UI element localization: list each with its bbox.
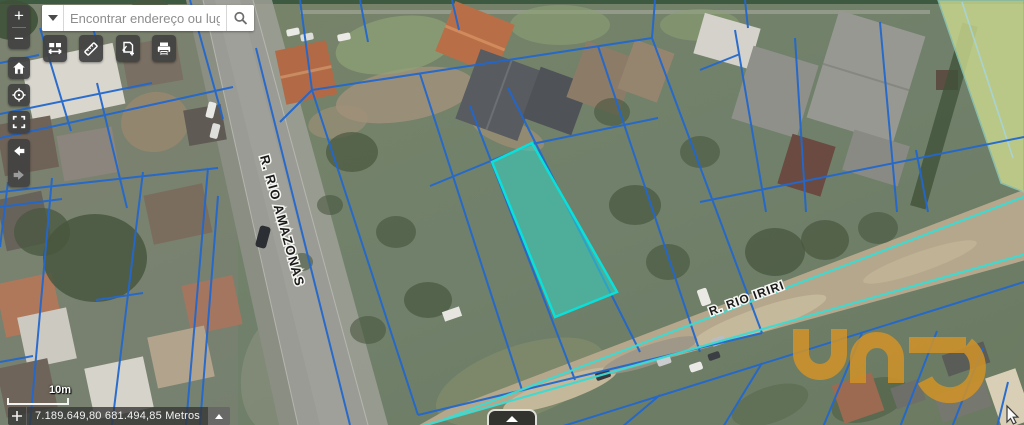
open-bottom-panel-button[interactable] — [487, 409, 537, 425]
measure-button[interactable] — [79, 35, 103, 62]
fullscreen-button[interactable] — [8, 111, 30, 133]
magnifier-icon — [233, 10, 248, 26]
zoom-control: + − — [8, 5, 30, 49]
caret-up-icon — [215, 414, 223, 419]
arrow-right-icon — [11, 167, 27, 183]
map-select-add-icon — [119, 40, 137, 58]
swipe-compare-button[interactable] — [43, 35, 67, 62]
coordinates-collapse-button[interactable] — [208, 407, 230, 425]
next-extent-button[interactable] — [8, 163, 30, 187]
arrow-left-icon — [11, 143, 27, 159]
search-bar — [42, 5, 254, 31]
home-icon — [11, 60, 27, 76]
fullscreen-corners-icon — [11, 114, 27, 130]
caret-down-icon — [48, 15, 58, 21]
plus-crosshair-icon — [8, 407, 27, 425]
map-canvas[interactable]: R. RIO AMAZONAS R. RIO IRIRI — [0, 0, 1024, 425]
locate-button[interactable] — [8, 84, 30, 106]
coordinates-bar: 7.189.649,80 681.494,85 Metros — [8, 407, 230, 425]
search-button[interactable] — [226, 5, 254, 31]
home-extent-button[interactable] — [8, 57, 30, 79]
search-source-dropdown[interactable] — [42, 5, 64, 31]
previous-extent-button[interactable] — [8, 139, 30, 163]
measure-ruler-icon — [82, 40, 100, 58]
crosshair-compass-icon — [11, 87, 27, 103]
swipe-compare-icon — [46, 40, 64, 58]
extent-history-control — [8, 139, 30, 187]
map-application: R. RIO AMAZONAS R. RIO IRIRI + − — [0, 0, 1024, 425]
zoom-out-button[interactable]: − — [8, 28, 30, 50]
coordinates-readout: 7.189.649,80 681.494,85 Metros — [27, 407, 208, 425]
search-input[interactable] — [64, 5, 226, 31]
zoom-in-button[interactable]: + — [8, 5, 30, 27]
print-button[interactable] — [152, 35, 176, 62]
printer-icon — [155, 40, 173, 58]
caret-up-icon — [506, 416, 518, 422]
select-features-button[interactable] — [116, 35, 140, 62]
